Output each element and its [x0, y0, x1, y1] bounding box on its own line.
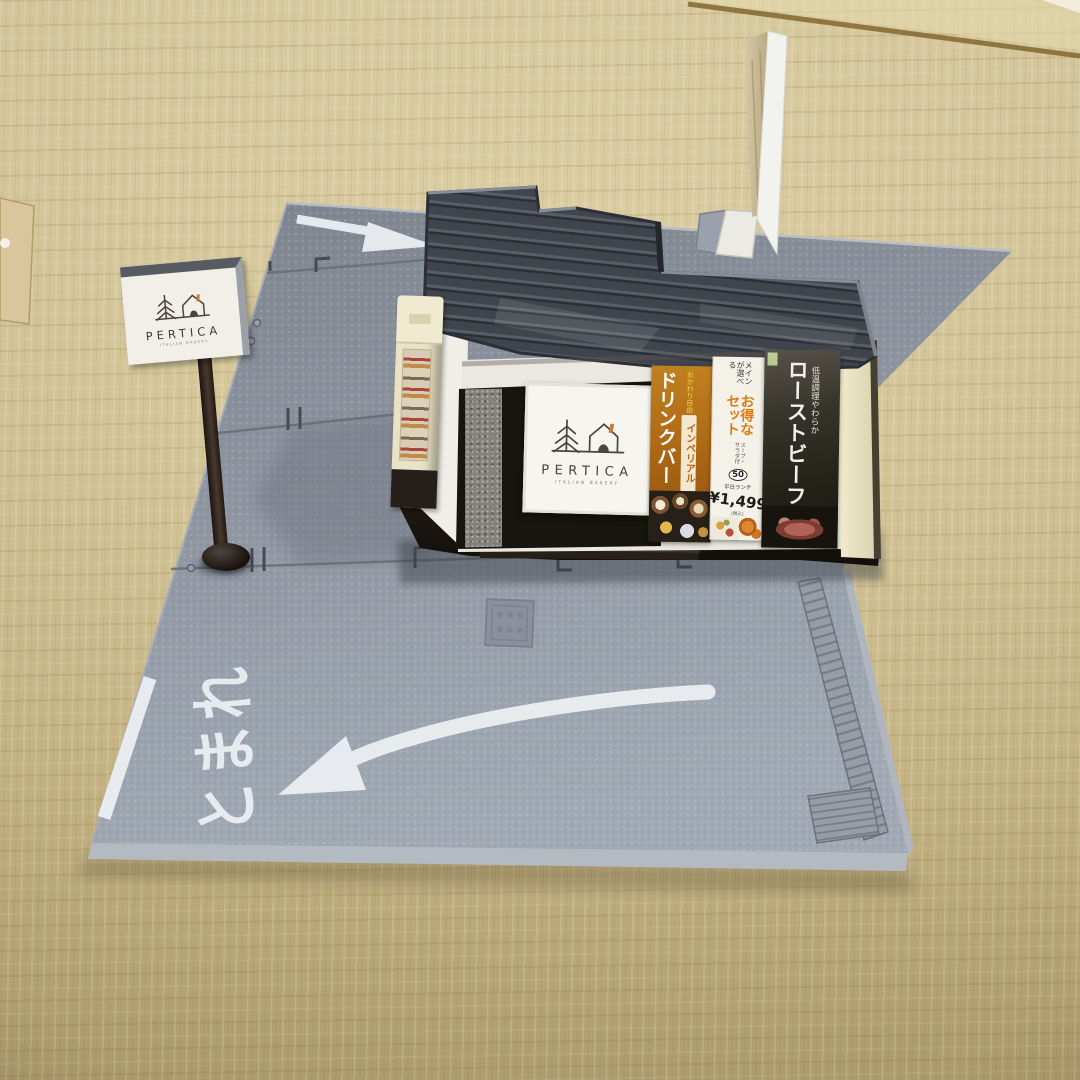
stone-pillar — [465, 389, 502, 548]
facade-brand: PERTICA — [541, 462, 634, 479]
door-arch — [598, 444, 609, 452]
set-food-photos — [710, 517, 763, 541]
roof — [424, 187, 876, 371]
manhole-emboss — [485, 599, 534, 647]
facade-subtitle: ITALIAN BAKERY — [555, 480, 619, 487]
photo-scene: とまれ PERTICA ITALIAN BAKERY ドリンクバー おかわり自由 — [0, 0, 1080, 1080]
drink-note: おかわり自由 — [686, 371, 694, 413]
banner-beef-text-area: ローストビーフ 低温調理やわらか — [762, 349, 841, 506]
set-title: お得なセット — [724, 394, 753, 442]
cardboard-scrap — [0, 198, 34, 324]
diorama-graphics — [0, 0, 1080, 1080]
vending-machine-slot — [409, 314, 431, 325]
beef-corner-tag — [767, 352, 777, 365]
drink-side-column: おかわり自由 インペリアル — [676, 371, 702, 491]
street-sign-board: PERTICA ITALIAN BAKERY — [120, 257, 250, 365]
drink-brand-strip: インペリアル — [680, 415, 696, 491]
banner-value-set: メインが選べる お得なセット スープ・サラダ付 50 平日ランチ ¥1,499 … — [709, 357, 766, 541]
drink-bar-title: ドリンクバー — [654, 371, 675, 491]
banner-roast-beef: ローストビーフ 低温調理やわらか — [761, 349, 840, 548]
vending-machine — [390, 295, 443, 508]
white-speck — [0, 238, 10, 248]
banner-drink-text-area: ドリンクバー おかわり自由 インペリアル — [649, 365, 713, 491]
pine-tree-icon — [554, 419, 580, 451]
set-items: スープ・サラダ付 — [733, 442, 745, 467]
vending-machine-top — [396, 295, 444, 345]
vending-machine-base — [390, 469, 437, 509]
pertica-logo-icon — [149, 285, 214, 326]
door-arch — [189, 310, 198, 316]
vending-machine-menu-strip — [399, 348, 432, 461]
drink-brand-sub: インペリアル — [683, 423, 694, 483]
set-lead: メインが選べる — [727, 361, 752, 393]
facade-sign: PERTICA ITALIAN BAKERY — [522, 382, 653, 515]
back-sign — [696, 31, 787, 258]
banner-drink-bar: ドリンクバー おかわり自由 インペリアル — [648, 365, 713, 542]
pertica-logo-icon — [548, 411, 629, 461]
beef-title: ローストビーフ — [783, 359, 807, 506]
beef-photo — [761, 505, 838, 548]
beef-sub: 低温調理やわらか — [808, 366, 819, 506]
pine-tree-icon — [155, 294, 176, 319]
chimney-icon — [196, 294, 199, 301]
sign-pole-base — [202, 543, 250, 571]
drink-food-photos — [648, 490, 711, 542]
road-stop-text: とまれ — [106, 653, 332, 845]
set-badge-50: 50 — [728, 469, 747, 481]
